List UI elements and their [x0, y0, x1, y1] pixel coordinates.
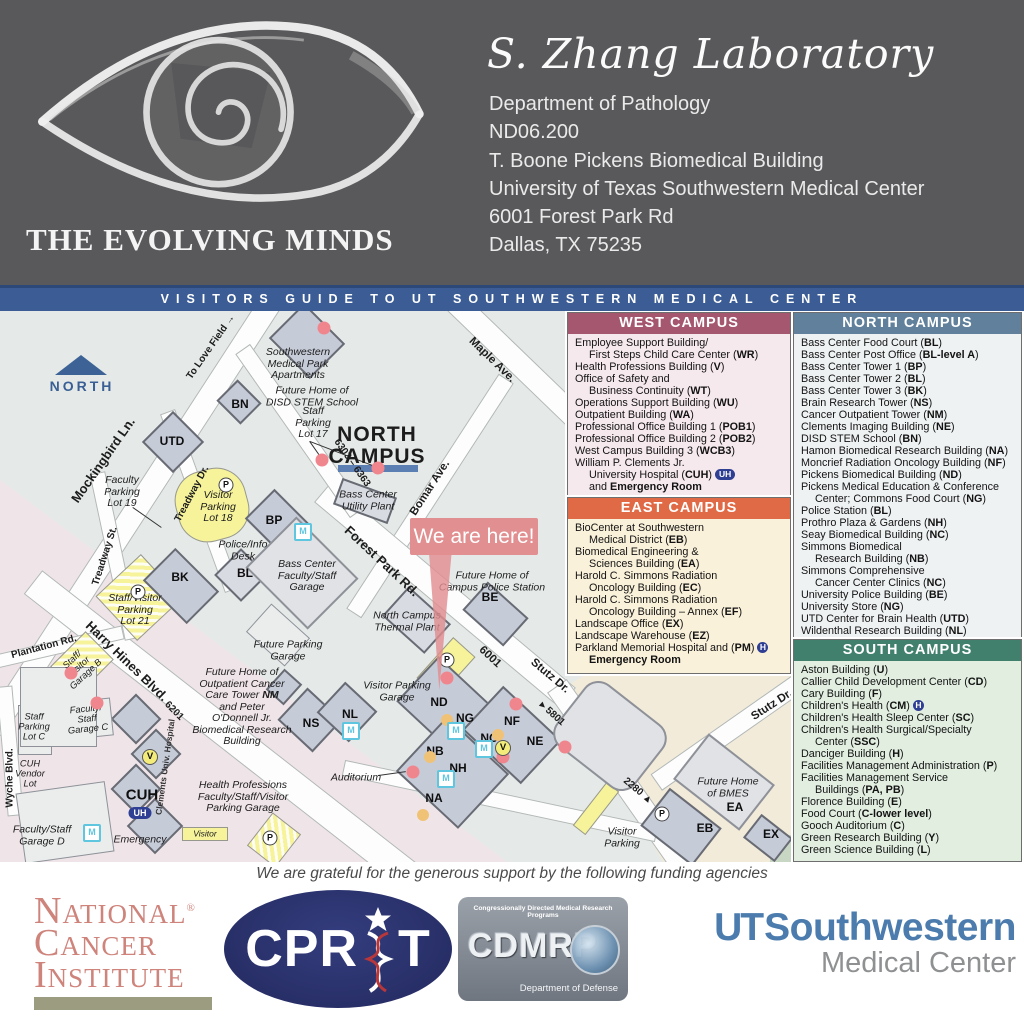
- address-line-5: Dallas, TX 75235: [489, 231, 924, 259]
- building-code-ea: EA: [727, 800, 744, 814]
- building-list-item: West Campus Building 3 (WCB3): [575, 445, 785, 457]
- entrance-dot-pink-0: [318, 322, 331, 335]
- address-line-4: 6001 Forest Park Rd: [489, 203, 924, 231]
- utsw-wordmark: UTSouthwestern: [660, 906, 1016, 950]
- building-list-item: Green Research Building (Y): [801, 832, 1016, 844]
- entrance-dot-pink-1: [316, 454, 329, 467]
- address-line-0: Department of Pathology: [489, 90, 924, 118]
- cdmrp-logo: Congressionally Directed Medical Researc…: [458, 897, 628, 1001]
- nci-logo: NATIONAL®CANCERINSTITUTE: [34, 894, 224, 1010]
- panel-title-south-campus: SOUTH CAMPUS: [794, 640, 1021, 661]
- address-line-1: ND06.200: [489, 118, 924, 146]
- building-list-item: BioCenter at Southwestern: [575, 522, 785, 534]
- funding-note: We are grateful for the generous support…: [0, 865, 1024, 883]
- funding-footer: We are grateful for the generous support…: [0, 862, 1024, 1019]
- map-label-lot19: FacultyParkingLot 19: [104, 475, 140, 510]
- building-list-east-campus: BioCenter at SouthwesternMedical Distric…: [568, 519, 790, 673]
- map-label-wyche: Wyche Blvd.: [5, 748, 16, 807]
- panel-north-campus: NORTH CAMPUSBass Center Food Court (BL)B…: [793, 312, 1022, 639]
- building-list-item: Hamon Biomedical Research Building (NA): [801, 445, 1016, 457]
- parking-icon-1: P: [131, 585, 146, 600]
- cprit-text-left: CPR: [245, 919, 358, 979]
- entrance-dot-pink-7: [559, 741, 572, 754]
- building-list-item: Emergency Room: [575, 654, 785, 666]
- building-code-nd: ND: [430, 695, 447, 709]
- visitors-guide-banner: VISITORS GUIDE TO UT SOUTHWESTERN MEDICA…: [0, 285, 1024, 311]
- shuttle-stop-icon-2: M: [447, 722, 465, 740]
- map-label-auditorium: Auditorium: [331, 772, 381, 784]
- map-label-visitor-box: Visitor: [193, 830, 216, 839]
- building-list-item: Bass Center Tower 1 (BP): [801, 361, 1016, 373]
- panel-east-campus: EAST CAMPUSBioCenter at SouthwesternMedi…: [567, 497, 791, 674]
- building-list-item: Oncology Building (EC): [575, 582, 785, 594]
- building-list-item: Buildings (PA, PB): [801, 784, 1016, 796]
- building-code-bl: BL: [237, 566, 253, 580]
- building-list-north-campus: Bass Center Food Court (BL)Bass Center P…: [794, 334, 1021, 638]
- building-list-item: Pickens Medical Education & Conference: [801, 481, 1016, 493]
- building-list-item: Bass Center Tower 2 (BL): [801, 373, 1016, 385]
- building-list-west-campus: Employee Support Building/First Steps Ch…: [568, 334, 790, 496]
- building-list-item: Simmons Comprehensive: [801, 565, 1016, 577]
- entrance-dot-pink-2: [372, 462, 385, 475]
- uh-hospital-badge: UH: [129, 807, 152, 819]
- building-list-item: Simmons Biomedical: [801, 541, 1016, 553]
- panel-title-north-campus: NORTH CAMPUS: [794, 313, 1021, 334]
- building-list-item: Sciences Building (EA): [575, 558, 785, 570]
- entrance-dot-orange-3: [417, 809, 429, 821]
- building-list-item: Parkland Memorial Hospital and (PM) H: [575, 642, 785, 654]
- building-list-item: Aston Building (U): [801, 664, 1016, 676]
- cdmrp-dod-text: Department of Defense: [520, 983, 618, 994]
- building-list-item: Cancer Center Clinics (NC): [801, 577, 1016, 589]
- building-code-utd: UTD: [160, 434, 185, 448]
- shuttle-stop-icon-1: M: [342, 722, 360, 740]
- building-list-item: Health Professions Building (V): [575, 361, 785, 373]
- building-list-item: Professional Office Building 1 (POB1): [575, 421, 785, 433]
- building-list-item: University Hospital (CUH) UH: [575, 469, 785, 481]
- we-are-here-callout: We are here!: [410, 518, 538, 555]
- map-label-lot18: VisitorParkingLot 18: [200, 490, 236, 525]
- map-label-police-desk: Police/InfoDesk: [218, 540, 267, 563]
- map-label-odonnell: Future Home ofOutpatient CancerCare Towe…: [192, 667, 291, 748]
- map-label-apartments: SouthwesternMedical ParkApartments: [266, 347, 330, 382]
- panel-west-campus: WEST CAMPUSEmployee Support Building/Fir…: [567, 312, 791, 497]
- map-label-garage-d: Faculty/StaffGarage D: [13, 825, 71, 848]
- building-list-item: Brain Research Tower (NS): [801, 397, 1016, 409]
- valet-icon-1: V: [495, 740, 511, 756]
- building-list-item: Employee Support Building/: [575, 337, 785, 349]
- building-list-item: Facilities Management Service: [801, 772, 1016, 784]
- shuttle-stop-icon-0: M: [294, 523, 312, 541]
- shuttle-stop-icon-5: M: [83, 824, 101, 842]
- map-label-bass-utility: Bass CenterUtility Plant: [339, 490, 397, 513]
- parking-icon-0: P: [219, 478, 234, 493]
- building-list-item: Florence Building (E): [801, 796, 1016, 808]
- entrance-dot-pink-5: [441, 672, 454, 685]
- map-label-bass-garage: Bass CenterFaculty/StaffGarage: [278, 559, 336, 594]
- building-list-item: Center; Commons Food Court (NG): [801, 493, 1016, 505]
- address-line-3: University of Texas Southwestern Medical…: [489, 175, 924, 203]
- lab-address: Department of PathologyND06.200T. Boone …: [489, 90, 924, 260]
- building-list-item: Prothro Plaza & Gardens (NH): [801, 517, 1016, 529]
- building-list-item: Medical District (EB): [575, 534, 785, 546]
- cprit-logo: CPR T: [224, 890, 452, 1008]
- north-arrow-label: NORTH: [42, 378, 122, 394]
- nci-line-1: CANCER: [34, 929, 224, 961]
- building-code-cuh: CUH: [126, 787, 159, 804]
- building-list-item: Cary Building (F): [801, 688, 1016, 700]
- address-line-2: T. Boone Pickens Biomedical Building: [489, 147, 924, 175]
- building-code-ns: NS: [303, 716, 320, 730]
- parking-icon-3: P: [655, 807, 670, 822]
- map-label-hp-garage: Health ProfessionsFaculty/Staff/VisitorP…: [198, 780, 288, 815]
- building-list-item: Callier Child Development Center (CD): [801, 676, 1016, 688]
- evolving-minds-eye-logo: [22, 6, 434, 224]
- building-list-item: Facilities Management Administration (P): [801, 760, 1016, 772]
- building-list-item: Danciger Building (H): [801, 748, 1016, 760]
- building-list-item: Landscape Warehouse (EZ): [575, 630, 785, 642]
- building-list-item: Children's Health Surgical/Specialty: [801, 724, 1016, 736]
- building-list-item: Food Court (C-lower level): [801, 808, 1016, 820]
- building-list-item: Oncology Building – Annex (EF): [575, 606, 785, 618]
- cprit-text-right: T: [398, 919, 431, 979]
- building-list-item: Green Science Building (L): [801, 844, 1016, 856]
- building-code-bn: BN: [231, 397, 248, 411]
- building-list-item: Outpatient Building (WA): [575, 409, 785, 421]
- map-label-emergency: Emergency: [113, 834, 166, 846]
- building-list-item: Cancer Outpatient Tower (NM): [801, 409, 1016, 421]
- lab-name: S. Zhang Laboratory: [487, 30, 934, 78]
- building-list-item: Professional Office Building 2 (POB2): [575, 433, 785, 445]
- building-code-na: NA: [425, 791, 442, 805]
- map-label-future-garage: Future ParkingGarage: [254, 640, 323, 663]
- building-list-item: Gooch Auditorium (C): [801, 820, 1016, 832]
- building-code-ne: NE: [527, 734, 544, 748]
- building-list-item: University Store (NG): [801, 601, 1016, 613]
- cprit-dna-star-icon: [358, 905, 398, 993]
- building-list-item: DISD STEM School (BN): [801, 433, 1016, 445]
- map-label-thermal: North CampusThermal Plant: [373, 611, 441, 634]
- building-code-bp: BP: [266, 513, 283, 527]
- building-list-item: Operations Support Building (WU): [575, 397, 785, 409]
- building-garage-d: [15, 781, 114, 862]
- map-label-lot17: StaffParkingLot 17: [295, 406, 331, 441]
- building-list-item: Office of Safety and: [575, 373, 785, 385]
- building-list-item: Biomedical Engineering &: [575, 546, 785, 558]
- building-list-item: Police Station (BL): [801, 505, 1016, 517]
- building-list-item: William P. Clements Jr.: [575, 457, 785, 469]
- building-list-item: Clements Imaging Building (NE): [801, 421, 1016, 433]
- building-code-nf: NF: [504, 714, 520, 728]
- shuttle-stop-icon-4: M: [437, 770, 455, 788]
- building-list-item: Wildenthal Research Building (NL): [801, 625, 1016, 637]
- north-arrow-icon: [55, 355, 107, 375]
- map-label-visitor-se: VisitorParking: [604, 827, 640, 850]
- nci-line-0: NATIONAL®: [34, 894, 224, 929]
- nci-line-2: INSTITUTE: [34, 961, 224, 993]
- entrance-dot-pink-3: [65, 667, 78, 680]
- building-list-item: Children's Health (CM) H: [801, 700, 1016, 712]
- building-list-item: Harold C. Simmons Radiation: [575, 594, 785, 606]
- map-canvas: NORTH We are here! To Love Field →Southw…: [0, 311, 1024, 862]
- panel-title-east-campus: EAST CAMPUS: [568, 498, 790, 519]
- shuttle-stop-icon-3: M: [475, 740, 493, 758]
- building-list-item: UTD Center for Brain Health (UTD): [801, 613, 1016, 625]
- entrance-dot-orange-1: [424, 751, 436, 763]
- building-list-item: University Police Building (BE): [801, 589, 1016, 601]
- cdmrp-globe-icon: [570, 925, 620, 975]
- building-code-bk: BK: [171, 570, 188, 584]
- entrance-dot-pink-9: [407, 766, 420, 779]
- map-label-bmes: Future Homeof BMES: [697, 777, 758, 800]
- building-list-item: Seay Biomedical Building (NC): [801, 529, 1016, 541]
- entrance-dot-pink-4: [91, 697, 104, 710]
- building-list-item: Moncrief Radiation Oncology Building (NF…: [801, 457, 1016, 469]
- building-list-item: Bass Center Tower 3 (BK): [801, 385, 1016, 397]
- entrance-dot-pink-6: [510, 698, 523, 711]
- building-list-item: Landscape Office (EX): [575, 618, 785, 630]
- building-code-be: BE: [482, 590, 499, 604]
- building-code-eb: EB: [697, 821, 714, 835]
- panel-south-campus: SOUTH CAMPUSAston Building (U)Callier Ch…: [793, 639, 1022, 862]
- building-code-ex: EX: [763, 827, 779, 841]
- visitor-guide-page: THE EVOLVING MINDS S. Zhang Laboratory D…: [0, 0, 1024, 1019]
- building-code-nl: NL: [342, 707, 358, 721]
- map-label-visitor-garage: Visitor ParkingGarage: [363, 681, 431, 704]
- utsw-logo: UTSouthwestern Medical Center: [660, 906, 1016, 980]
- map-label-lot-c: StaffParkingLot C: [18, 712, 50, 743]
- brand-wordmark: THE EVOLVING MINDS: [26, 222, 446, 258]
- building-list-item: First Steps Child Care Center (WR): [575, 349, 785, 361]
- nci-bar: [34, 997, 212, 1010]
- building-list-item: Bass Center Post Office (BL-level A): [801, 349, 1016, 361]
- building-list-item: Center (SSC): [801, 736, 1016, 748]
- parking-icon-4: P: [263, 831, 278, 846]
- panel-title-west-campus: WEST CAMPUS: [568, 313, 790, 334]
- building-list-south-campus: Aston Building (U)Callier Child Developm…: [794, 661, 1021, 861]
- building-list-item: Children's Health Sleep Center (SC): [801, 712, 1016, 724]
- valet-icon-0: V: [142, 749, 158, 765]
- map-label-cuh-vendor: CUHVendorLot: [15, 759, 45, 790]
- building-list-item: Business Continuity (WT): [575, 385, 785, 397]
- utsw-medical-center: Medical Center: [660, 947, 1016, 980]
- building-list-item: and Emergency Room: [575, 481, 785, 493]
- letterhead: THE EVOLVING MINDS S. Zhang Laboratory D…: [0, 0, 1024, 285]
- building-list-item: Bass Center Food Court (BL): [801, 337, 1016, 349]
- building-list-item: Pickens Biomedical Building (ND): [801, 469, 1016, 481]
- building-list-item: Research Building (NB): [801, 553, 1016, 565]
- building-list-item: Harold C. Simmons Radiation: [575, 570, 785, 582]
- cdmrp-program-text: Congressionally Directed Medical Researc…: [458, 905, 628, 919]
